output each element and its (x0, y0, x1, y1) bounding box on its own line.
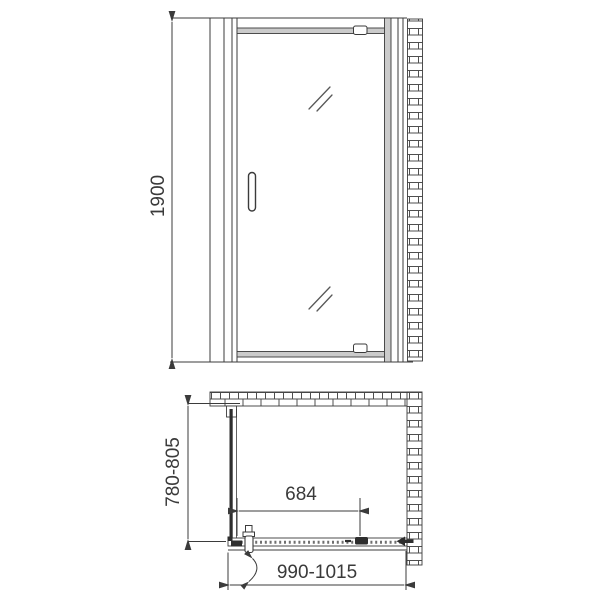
pivot-hinge-top-icon (354, 26, 368, 35)
pivot-hinge-bottom-icon (354, 344, 368, 353)
door-leaf-plan (228, 538, 407, 550)
side-panel-plan (227, 406, 237, 539)
brick-wall-hatch-plan-top (210, 392, 422, 406)
front-elevation-view (170, 18, 423, 362)
brick-wall-hatch-plan-right (407, 392, 422, 565)
technical-drawing-canvas: 1900 780-805 684 990-1015 (0, 0, 600, 600)
dimension-label-width: 990-1015 (267, 562, 367, 584)
handle-knob-plan (243, 526, 255, 553)
glass-symbol-icon (309, 87, 332, 111)
door-handle (249, 173, 256, 212)
brick-wall-hatch-elevation (408, 19, 423, 361)
dimension-label-opening: 684 (271, 484, 331, 506)
dimension-label-depth: 780-805 (163, 430, 185, 514)
dimension-label-height: 1900 (148, 171, 170, 221)
door-swing-arrow-icon (249, 559, 257, 582)
drawing-linework (0, 0, 600, 600)
elevation-outline (170, 18, 413, 362)
door-frame (237, 18, 391, 362)
glass-symbol-icon (309, 287, 332, 311)
